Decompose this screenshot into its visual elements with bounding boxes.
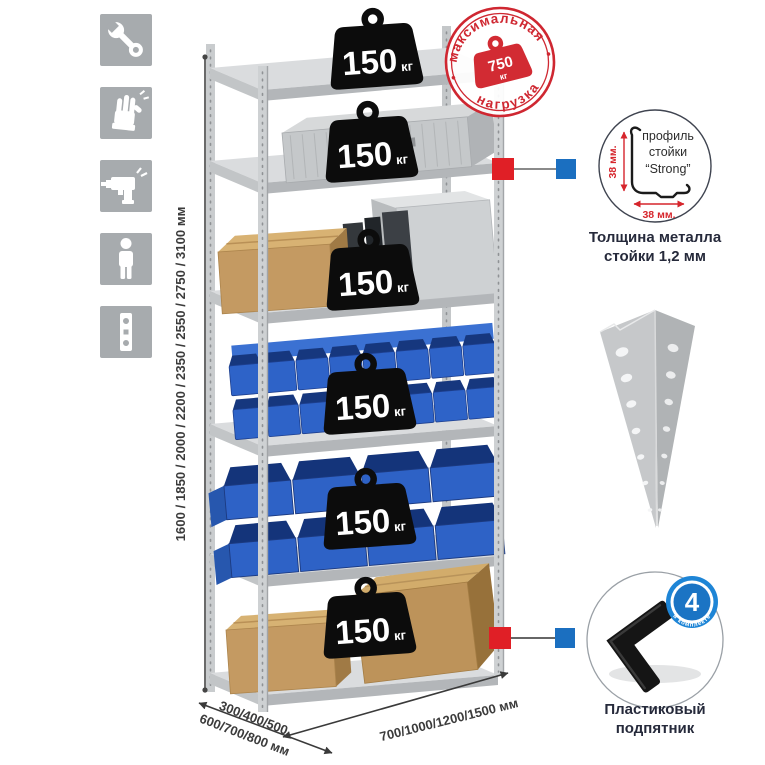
weight-badge-value: 150: [334, 502, 392, 543]
red-square-marker: [492, 158, 514, 180]
plastic-foot-caption-line1: Пластиковый: [604, 701, 705, 718]
profile-detail-circle: 38 мм. 38 мм. профиль стойки “Strong”: [599, 110, 711, 222]
red-square-marker: [489, 627, 511, 649]
detail-connector: [492, 158, 576, 180]
height-dimension-label: 1600 / 1850 / 2000 / 2200 / 2350 / 2550 …: [173, 207, 188, 542]
weight-badge-value: 150: [341, 42, 399, 83]
weight-badge-value: 150: [334, 611, 392, 652]
profile-label-line3: “Strong”: [645, 162, 690, 176]
width-dimension-label: 700/1000/1200/1500 мм: [378, 695, 520, 744]
weight-badge-unit: кг: [394, 518, 408, 534]
profile-width-dim-label: 38 мм.: [642, 209, 675, 221]
profile-height-dim-label: 38 мм.: [607, 145, 619, 178]
plastic-foot-caption-line2: подпятник: [616, 720, 695, 737]
weight-badge-unit: кг: [397, 279, 411, 295]
profile-label-line2: стойки: [649, 145, 687, 159]
weight-badge-value: 150: [337, 263, 395, 304]
corner-post-image: [600, 310, 695, 528]
weight-badge-value: 150: [334, 387, 392, 428]
weight-badge-unit: кг: [401, 58, 415, 74]
detail-connector: [489, 627, 575, 649]
weight-badge-unit: кг: [394, 627, 408, 643]
metal-thickness-caption-line2: стойки 1,2 мм: [604, 248, 706, 265]
page: 150 кг 150 кг 150 кг 150 кг 150 кг: [0, 0, 765, 765]
quantity-badge-count: 4: [685, 587, 700, 617]
weight-badge-unit: кг: [396, 151, 410, 167]
metal-thickness-caption-line1: Толщина металла: [589, 229, 722, 246]
weight-badge: 150 кг: [326, 8, 424, 90]
weight-badge-unit: кг: [394, 403, 408, 419]
plastic-foot-circle: 4 в комплекте: [587, 572, 723, 708]
weight-badge-value: 150: [336, 135, 394, 176]
profile-label-line1: профиль: [642, 129, 694, 143]
detail-column: 38 мм. 38 мм. профиль стойки “Strong” То…: [570, 90, 765, 765]
